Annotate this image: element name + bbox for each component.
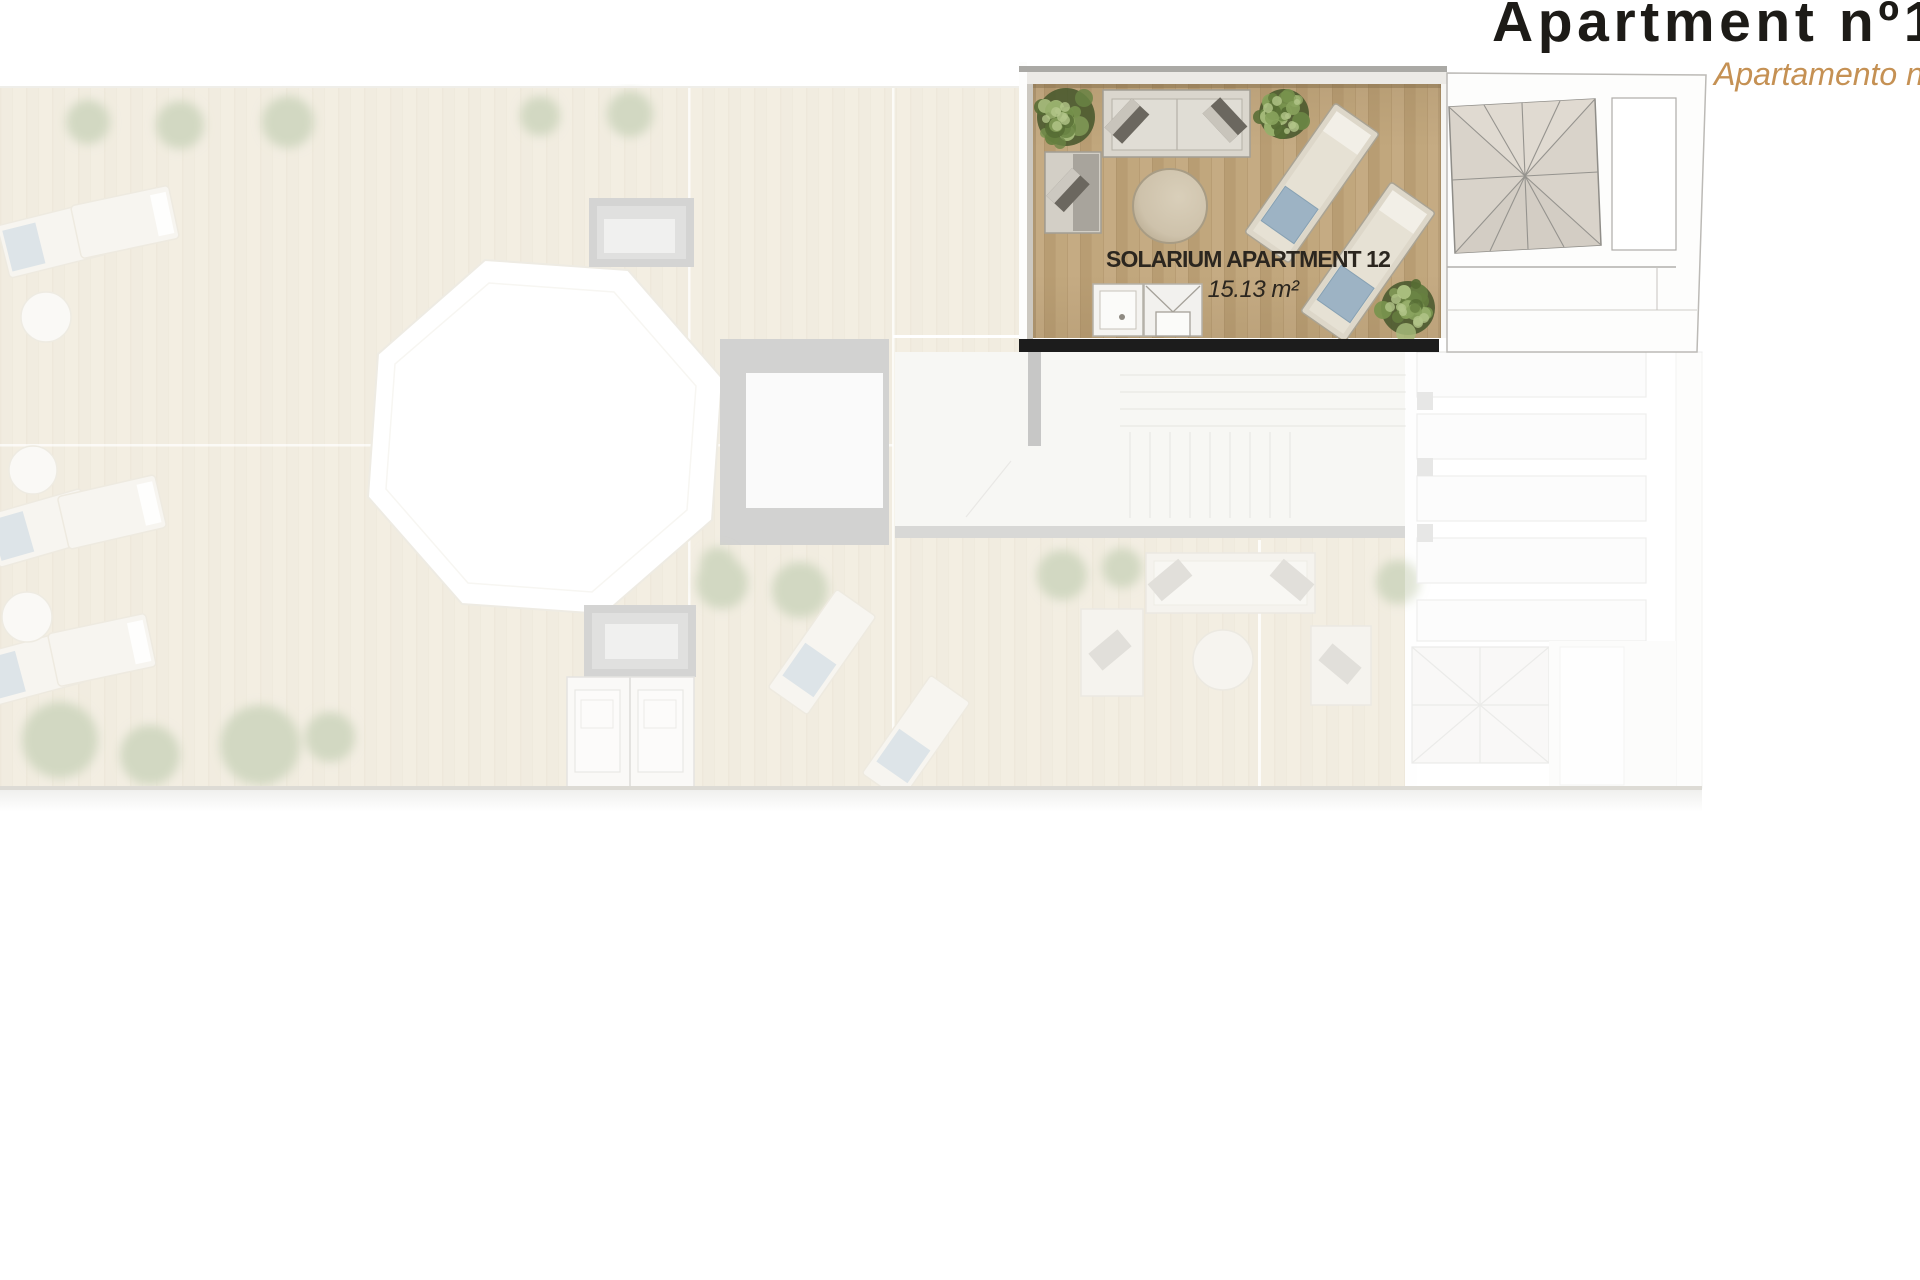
svg-text:SOLARIUM APARTMENT 12: SOLARIUM APARTMENT 12 <box>1106 246 1390 272</box>
svg-text:15.13 m²: 15.13 m² <box>1208 276 1300 303</box>
